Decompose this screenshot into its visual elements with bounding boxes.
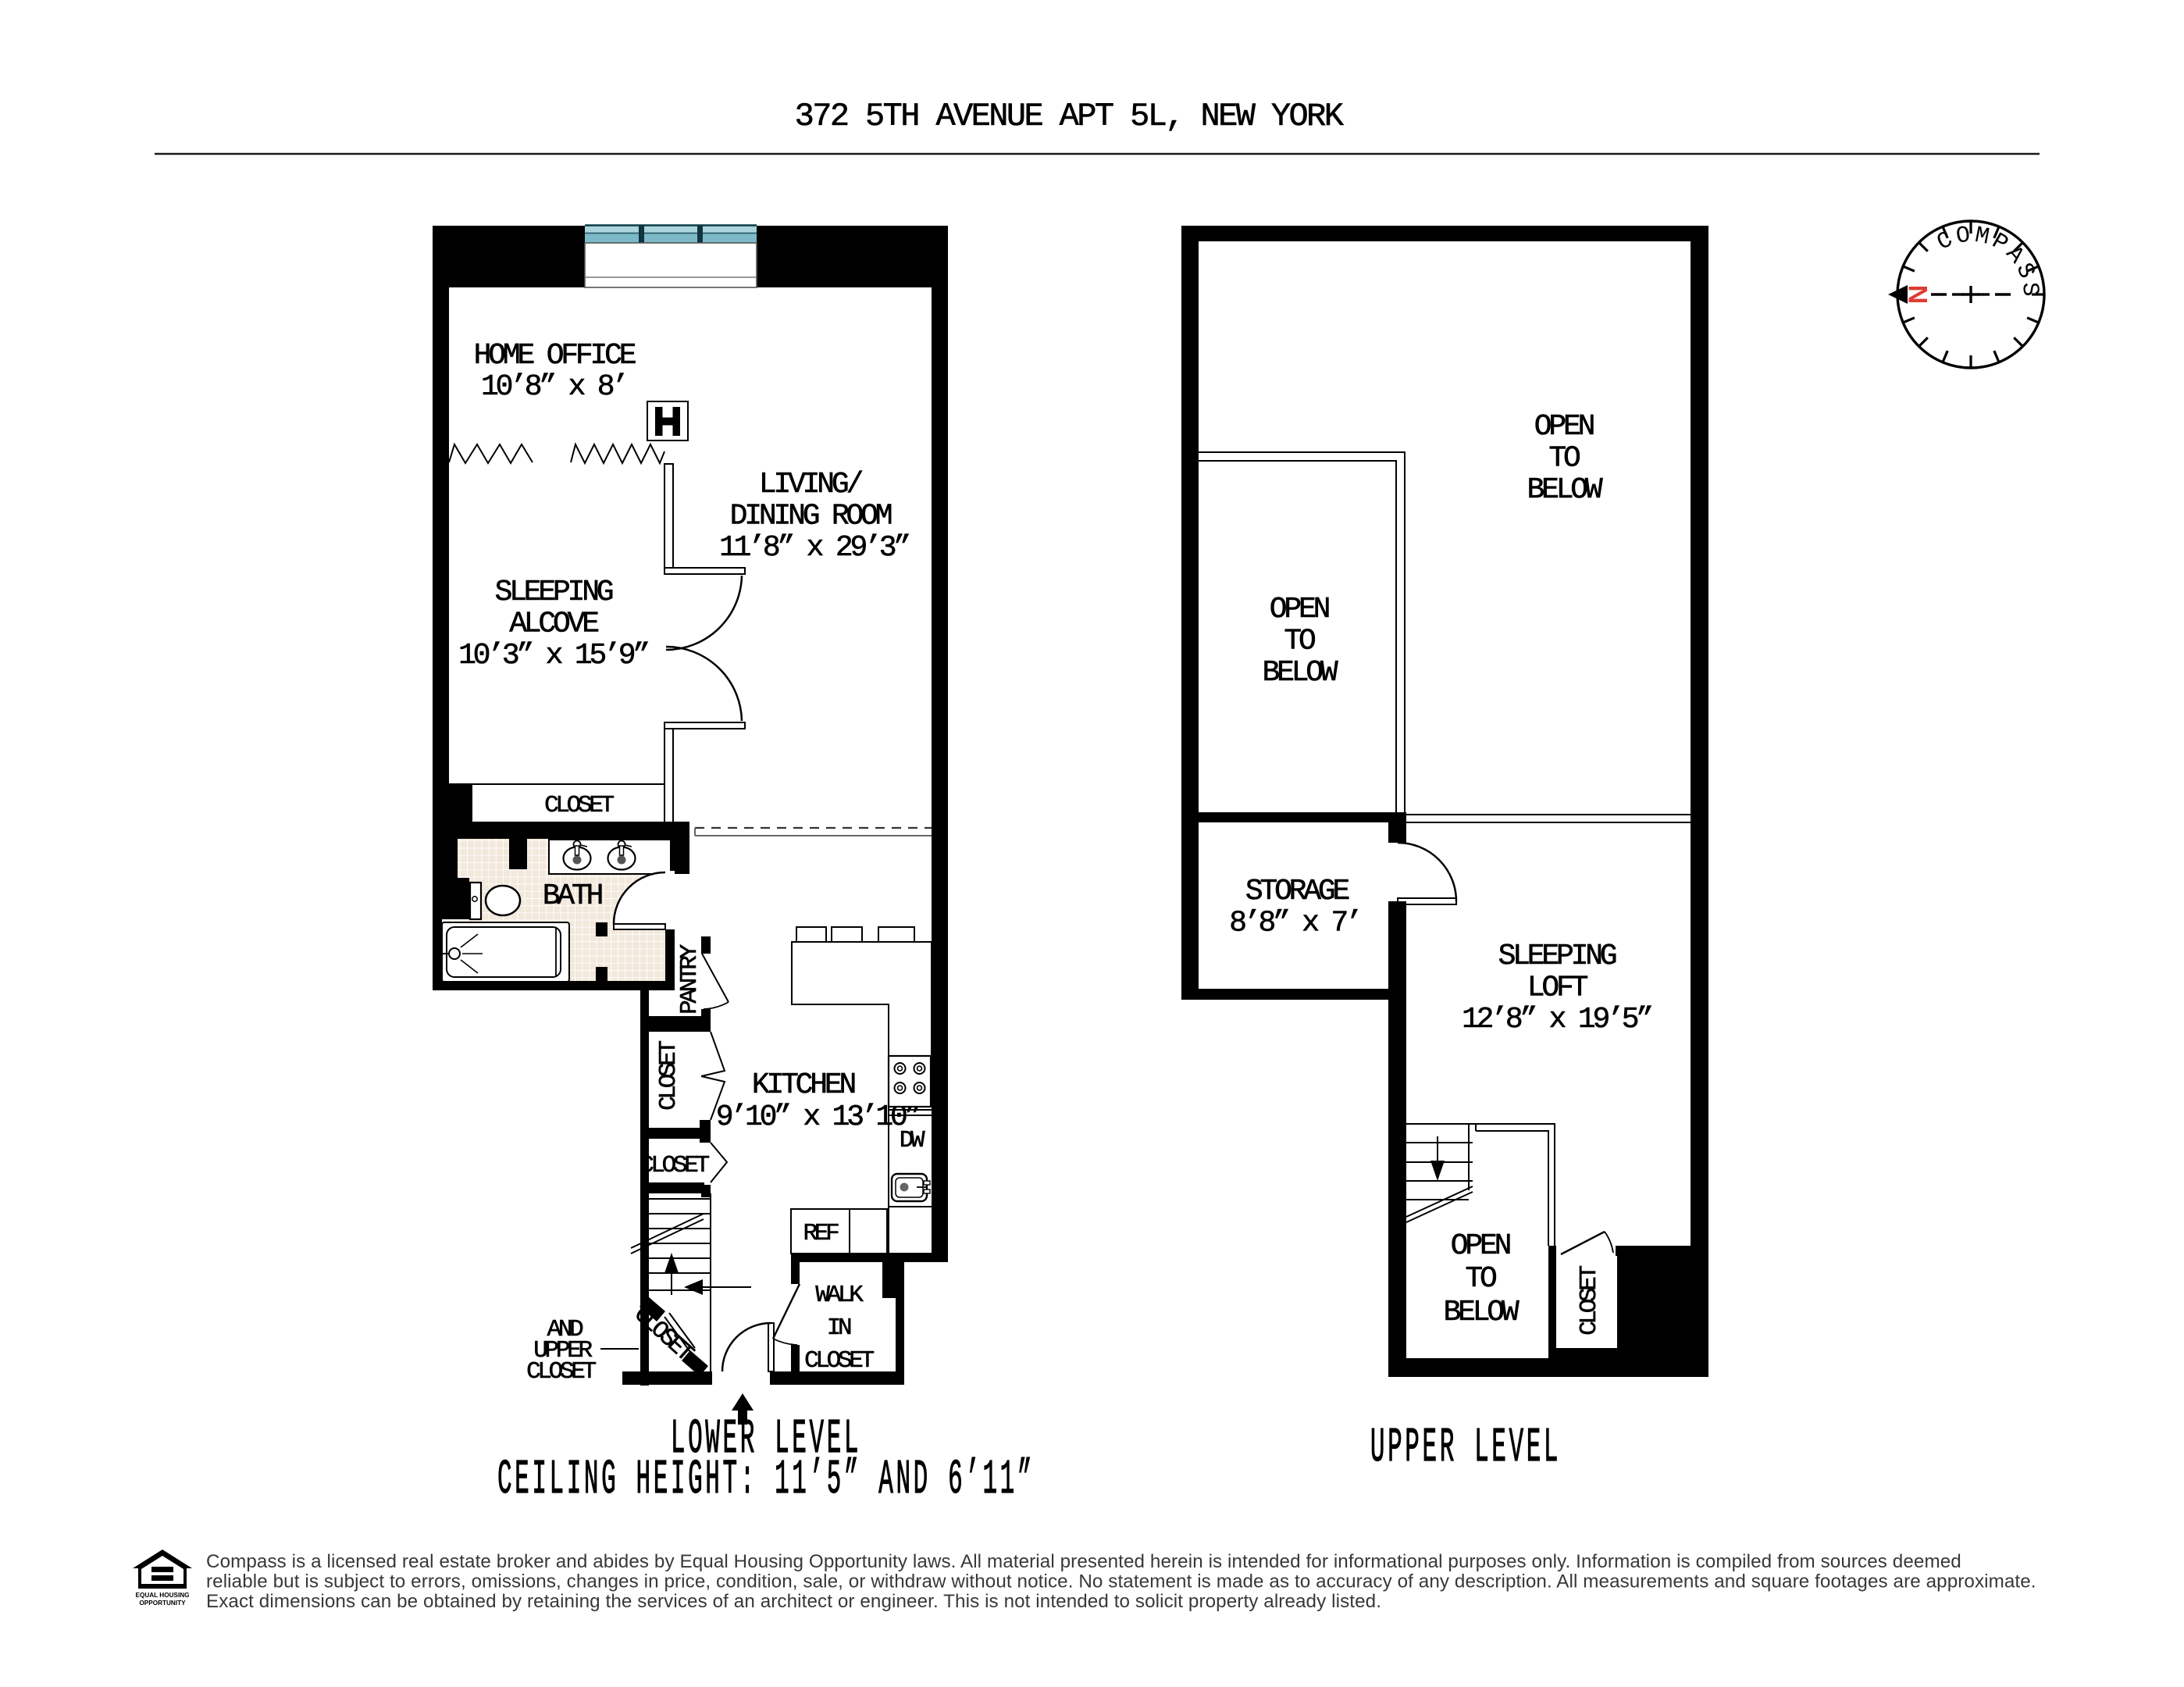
svg-text:CLOSET: CLOSET [526, 1358, 597, 1386]
svg-text:LOFT: LOFT [1527, 972, 1588, 1005]
svg-text:CLOSET: CLOSET [804, 1347, 875, 1375]
svg-text:TO: TO [1284, 625, 1315, 658]
svg-text:PANTRY: PANTRY [676, 943, 704, 1015]
svg-text:SLEEPING: SLEEPING [495, 576, 613, 609]
svg-text:BELOW: BELOW [1527, 473, 1602, 507]
svg-text:BATH: BATH [543, 879, 602, 913]
svg-text:10’3” x 15’9”: 10’3” x 15’9” [458, 639, 648, 672]
svg-text:WALK: WALK [815, 1282, 864, 1309]
svg-text:ALCOVE: ALCOVE [509, 608, 598, 641]
svg-text:N: N [1904, 285, 1933, 305]
svg-text:DINING ROOM: DINING ROOM [730, 500, 892, 533]
svg-text:12’8” x 19’5”: 12’8” x 19’5” [1462, 1003, 1651, 1036]
svg-text:STORAGE: STORAGE [1245, 875, 1349, 908]
svg-text:UPPER LEVEL: UPPER LEVEL [1370, 1420, 1561, 1475]
svg-text:TO: TO [1465, 1262, 1496, 1296]
svg-text:Exact dimensions can be obtain: Exact dimensions can be obtained by reta… [206, 1591, 1381, 1612]
svg-text:SLEEPING: SLEEPING [1498, 940, 1616, 973]
svg-text:CLOSET: CLOSET [655, 1040, 682, 1111]
svg-text:CEILING HEIGHT: 11’5” AND 6’11: CEILING HEIGHT: 11’5” AND 6’11” [497, 1452, 1035, 1507]
svg-text:OPEN: OPEN [1534, 410, 1594, 444]
svg-text:CLOSET: CLOSET [640, 1152, 710, 1179]
svg-text:BELOW: BELOW [1443, 1296, 1519, 1329]
svg-text:OPPORTUNITY: OPPORTUNITY [139, 1600, 186, 1607]
svg-text:CLOSET: CLOSET [1576, 1265, 1603, 1336]
svg-text:S: S [2015, 281, 2043, 298]
svg-text:BELOW: BELOW [1262, 656, 1338, 690]
svg-text:DW: DW [900, 1127, 925, 1154]
svg-text:TO: TO [1548, 442, 1580, 476]
svg-text:Compass is a licensed real est: Compass is a licensed real estate broker… [206, 1551, 1961, 1572]
svg-text:reliable but is subject to err: reliable but is subject to errors, omiss… [206, 1571, 2036, 1592]
svg-text:8’8” x 7’: 8’8” x 7’ [1229, 907, 1359, 940]
svg-text:REF: REF [803, 1220, 839, 1247]
svg-text:11’8” x 29’3”: 11’8” x 29’3” [719, 531, 909, 565]
svg-text:IN: IN [827, 1314, 851, 1342]
svg-text:HOME OFFICE: HOME OFFICE [474, 339, 636, 373]
svg-text:LIVING/: LIVING/ [759, 468, 863, 501]
svg-text:372 5TH AVENUE APT 5L, NEW YOR: 372 5TH AVENUE APT 5L, NEW YORK [795, 98, 1345, 135]
svg-text:OPEN: OPEN [1270, 593, 1329, 626]
svg-text:10’8” x 8’: 10’8” x 8’ [481, 370, 626, 404]
svg-text:OPEN: OPEN [1451, 1229, 1510, 1263]
svg-text:EQUAL HOUSING: EQUAL HOUSING [136, 1592, 190, 1599]
svg-text:CLOSET: CLOSET [544, 792, 615, 819]
svg-text:KITCHEN: KITCHEN [752, 1068, 855, 1102]
